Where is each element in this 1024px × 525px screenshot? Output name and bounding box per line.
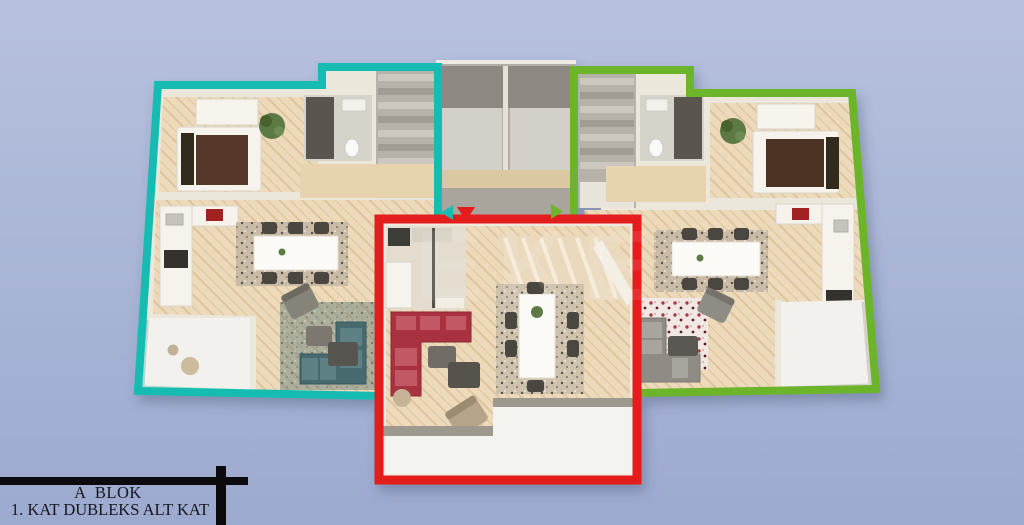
- unit-right-plant: [720, 118, 746, 144]
- title-frame-arm-line: [226, 477, 248, 485]
- unit-right-hall-floor: [606, 166, 706, 202]
- unit-left-plant: [259, 113, 285, 139]
- unit-left-balcony: [141, 318, 250, 394]
- unit-left-bed: [177, 127, 261, 191]
- unit-left-wardrobe: [196, 99, 258, 125]
- stair-core-corridor: [436, 60, 576, 218]
- floor-name-label: 1. KAT DUBLEKS ALT KAT: [0, 500, 220, 520]
- unit-right-bed: [753, 131, 839, 193]
- unit-right-balcony: [775, 300, 872, 392]
- watermark-text: EKE: [416, 210, 664, 322]
- unit-left-bathroom: [304, 95, 372, 161]
- unit-right-bathroom: [640, 95, 704, 161]
- unit-right-dining: [654, 228, 768, 292]
- floorplan-screenshot: EKE A BLOK 1. KAT DUBLEKS ALT KAT: [0, 0, 1024, 525]
- unit-left-dining: [236, 222, 348, 286]
- unit-right-wardrobe: [757, 104, 815, 129]
- unit-left-hall-floor: [300, 164, 436, 198]
- floorplan-render: EKE: [0, 0, 1024, 525]
